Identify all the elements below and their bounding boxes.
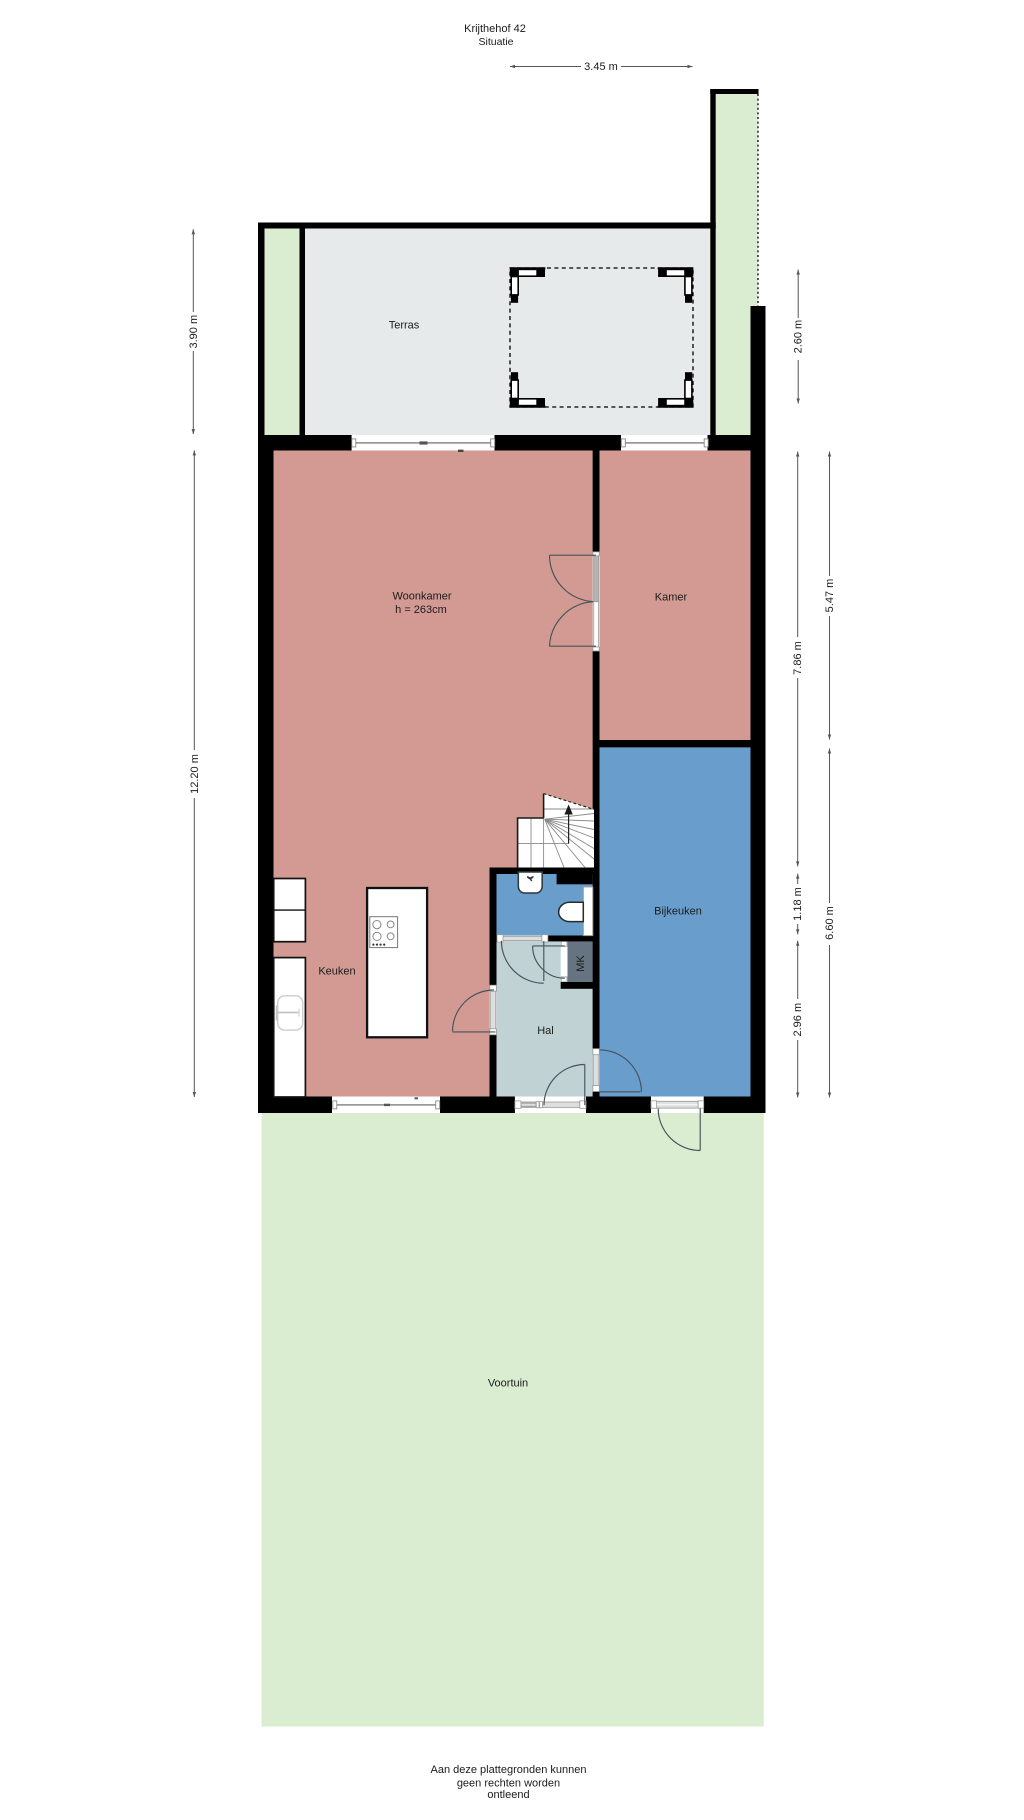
svg-text:Aan deze plattegronden kunnen: Aan deze plattegronden kunnen <box>431 1764 587 1776</box>
svg-text:MK: MK <box>575 955 587 972</box>
svg-text:Krijthehof 42: Krijthehof 42 <box>464 23 526 35</box>
svg-text:Kamer: Kamer <box>655 592 688 604</box>
svg-text:3.45 m: 3.45 m <box>584 61 618 73</box>
svg-text:Terras: Terras <box>389 320 420 332</box>
svg-text:Woonkamer: Woonkamer <box>392 591 451 603</box>
svg-text:ontleend: ontleend <box>487 1789 529 1801</box>
svg-text:6.60 m: 6.60 m <box>824 906 836 940</box>
svg-text:geen rechten worden: geen rechten worden <box>457 1777 560 1789</box>
svg-text:Hal: Hal <box>537 1025 554 1037</box>
svg-text:Situatie: Situatie <box>478 36 513 48</box>
svg-text:1.18 m: 1.18 m <box>792 887 804 921</box>
svg-text:12.20 m: 12.20 m <box>189 754 201 794</box>
svg-text:h = 263cm: h = 263cm <box>395 604 447 616</box>
svg-text:Keuken: Keuken <box>318 966 355 978</box>
svg-text:2.96 m: 2.96 m <box>792 1003 804 1037</box>
svg-text:3.90 m: 3.90 m <box>188 315 200 349</box>
svg-text:2.60 m: 2.60 m <box>793 320 805 354</box>
svg-text:Bijkeuken: Bijkeuken <box>654 906 702 918</box>
svg-text:7.86 m: 7.86 m <box>792 641 804 675</box>
svg-text:5.47 m: 5.47 m <box>824 579 836 613</box>
svg-text:Voortuin: Voortuin <box>488 1378 528 1390</box>
